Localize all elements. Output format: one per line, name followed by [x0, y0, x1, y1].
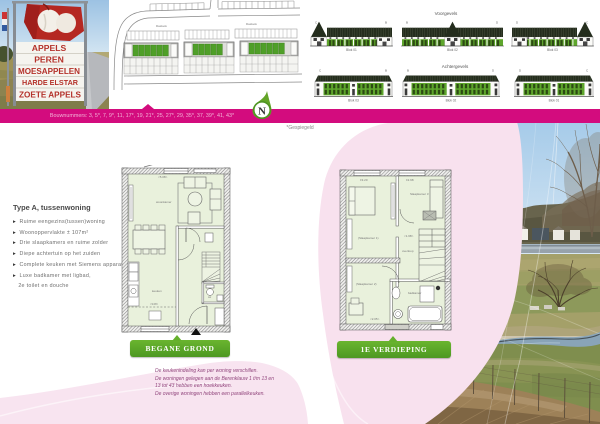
svg-text:C: C [586, 69, 589, 73]
svg-text:C: C [586, 21, 589, 25]
svg-text:D: D [516, 21, 519, 25]
svg-text:B: B [385, 21, 387, 25]
svg-text:±3.20: ±3.20 [360, 178, 368, 182]
svg-text:HARDE ELSTAR: HARDE ELSTAR [22, 78, 79, 87]
svg-text:Blok 03: Blok 03 [547, 48, 558, 52]
svg-text:Voorgevels: Voorgevels [435, 11, 458, 16]
svg-text:D: D [492, 69, 495, 73]
svg-text:Slaapkamer 3: Slaapkamer 3 [410, 192, 429, 196]
svg-text:(Slaapkamer 2): (Slaapkamer 2) [356, 282, 377, 286]
svg-text:ZOETE APPELS: ZOETE APPELS [19, 91, 82, 100]
svg-text:keuken: keuken [152, 289, 162, 293]
svg-text:woonkamer: woonkamer [156, 200, 172, 204]
svg-text:<1.68>: <1.68> [404, 234, 414, 238]
svg-text:N: N [258, 106, 266, 118]
svg-text:±2.98: ±2.98 [406, 178, 414, 182]
svg-text:APPELS: APPELS [32, 43, 67, 53]
svg-text:Daslook: Daslook [246, 22, 257, 26]
svg-text:badkamer: badkamer [408, 291, 421, 295]
svg-text:Daslook: Daslook [156, 24, 167, 28]
svg-text:Blok 02: Blok 02 [446, 98, 457, 102]
svg-text:Blok 01: Blok 01 [549, 98, 560, 102]
svg-text:PEREN: PEREN [34, 55, 64, 65]
svg-text:D: D [496, 21, 499, 25]
svg-text:B: B [406, 21, 408, 25]
svg-text:Blok 02: Blok 02 [447, 48, 458, 52]
svg-text:B: B [407, 69, 409, 73]
svg-text:<5.08>: <5.08> [158, 175, 168, 179]
svg-text:B: B [385, 69, 387, 73]
svg-text:C: C [315, 21, 318, 25]
svg-text:MOESAPPELEN: MOESAPPELEN [18, 67, 80, 76]
svg-text:(Slaapkamer 1): (Slaapkamer 1) [358, 236, 379, 240]
svg-text:D: D [519, 69, 522, 73]
svg-text:Blok 03: Blok 03 [348, 98, 359, 102]
svg-text:Achtergevels: Achtergevels [442, 64, 469, 69]
svg-text:overloop: overloop [402, 249, 414, 253]
svg-text:<2.05>: <2.05> [370, 317, 380, 321]
svg-text:<3.08>: <3.08> [150, 302, 159, 306]
svg-text:C: C [319, 69, 322, 73]
svg-text:Blok 01: Blok 01 [346, 48, 357, 52]
